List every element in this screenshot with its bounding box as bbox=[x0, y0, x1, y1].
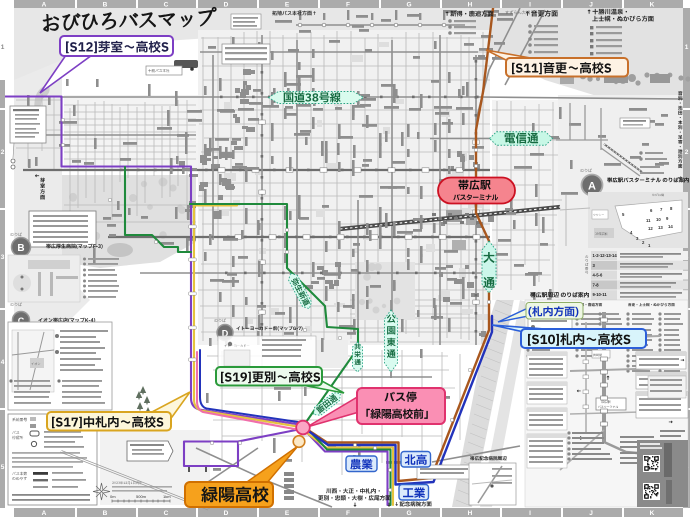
svg-text:4-5-6: 4-5-6 bbox=[593, 273, 603, 278]
svg-text:4: 4 bbox=[1, 359, 5, 366]
svg-text:11: 11 bbox=[646, 218, 651, 223]
svg-text:F: F bbox=[346, 1, 350, 8]
svg-text:13: 13 bbox=[658, 225, 663, 230]
svg-text:12: 12 bbox=[648, 226, 653, 231]
svg-text:10: 10 bbox=[656, 217, 661, 222]
svg-text:1: 1 bbox=[1, 44, 5, 51]
svg-text:A: A bbox=[42, 1, 47, 8]
svg-text:B: B bbox=[103, 1, 108, 8]
svg-text:2: 2 bbox=[685, 149, 689, 156]
svg-text:0m: 0m bbox=[110, 494, 116, 499]
svg-text:2: 2 bbox=[1, 149, 5, 156]
svg-text:E: E bbox=[285, 510, 290, 517]
svg-text:7-8: 7-8 bbox=[593, 282, 600, 287]
svg-text:H: H bbox=[468, 510, 473, 517]
svg-text:G: G bbox=[406, 1, 411, 8]
svg-text:5: 5 bbox=[1, 464, 5, 471]
svg-text:B: B bbox=[17, 243, 24, 254]
svg-text:D: D bbox=[224, 510, 229, 517]
svg-text:C: C bbox=[164, 510, 169, 517]
svg-text:C: C bbox=[164, 1, 169, 8]
svg-text:E: E bbox=[285, 1, 290, 8]
svg-text:1-2-12-13-14: 1-2-12-13-14 bbox=[593, 253, 618, 258]
svg-text:14: 14 bbox=[668, 224, 673, 229]
svg-text:H: H bbox=[468, 1, 473, 8]
svg-text:1: 1 bbox=[685, 44, 689, 51]
svg-text:K: K bbox=[650, 510, 655, 517]
svg-text:I: I bbox=[529, 510, 531, 517]
svg-text:I: I bbox=[529, 1, 531, 8]
svg-text:B: B bbox=[103, 510, 108, 517]
svg-text:J: J bbox=[589, 510, 593, 517]
svg-text:G: G bbox=[406, 510, 411, 517]
svg-text:A: A bbox=[588, 181, 596, 193]
svg-text:500m: 500m bbox=[136, 494, 147, 499]
svg-text:J: J bbox=[589, 1, 593, 8]
svg-text:K: K bbox=[650, 1, 655, 8]
svg-text:3: 3 bbox=[1, 254, 5, 261]
svg-text:F: F bbox=[346, 510, 350, 517]
svg-text:D: D bbox=[224, 1, 229, 8]
svg-text:9-10-11: 9-10-11 bbox=[593, 292, 608, 297]
svg-text:A: A bbox=[42, 510, 47, 517]
